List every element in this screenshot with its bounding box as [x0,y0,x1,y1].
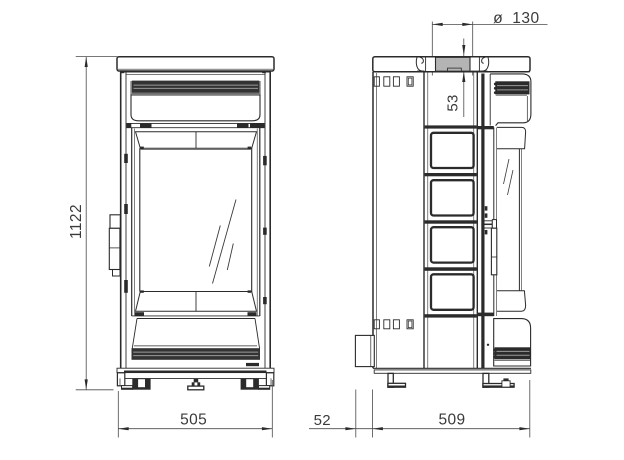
svg-text:53: 53 [444,94,461,111]
svg-text:505: 505 [180,411,207,428]
svg-text:1122: 1122 [68,204,85,239]
svg-text:130: 130 [512,10,539,27]
svg-text:509: 509 [438,412,465,429]
svg-text:ø: ø [493,10,503,27]
svg-text:52: 52 [314,412,331,429]
